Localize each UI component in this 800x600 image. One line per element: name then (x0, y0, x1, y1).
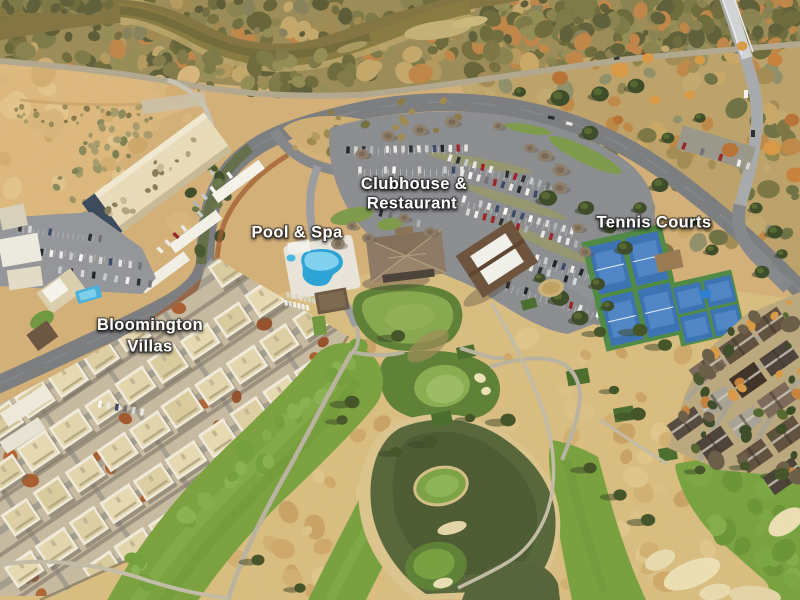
svg-text:Clubhouse &: Clubhouse & (361, 175, 467, 193)
svg-text:Bloomington: Bloomington (97, 316, 203, 334)
svg-text:Pool & Spa: Pool & Spa (251, 224, 343, 242)
svg-text:Restaurant: Restaurant (367, 195, 457, 213)
svg-text:Tennis Courts: Tennis Courts (597, 214, 712, 232)
svg-text:Villas: Villas (127, 338, 172, 356)
